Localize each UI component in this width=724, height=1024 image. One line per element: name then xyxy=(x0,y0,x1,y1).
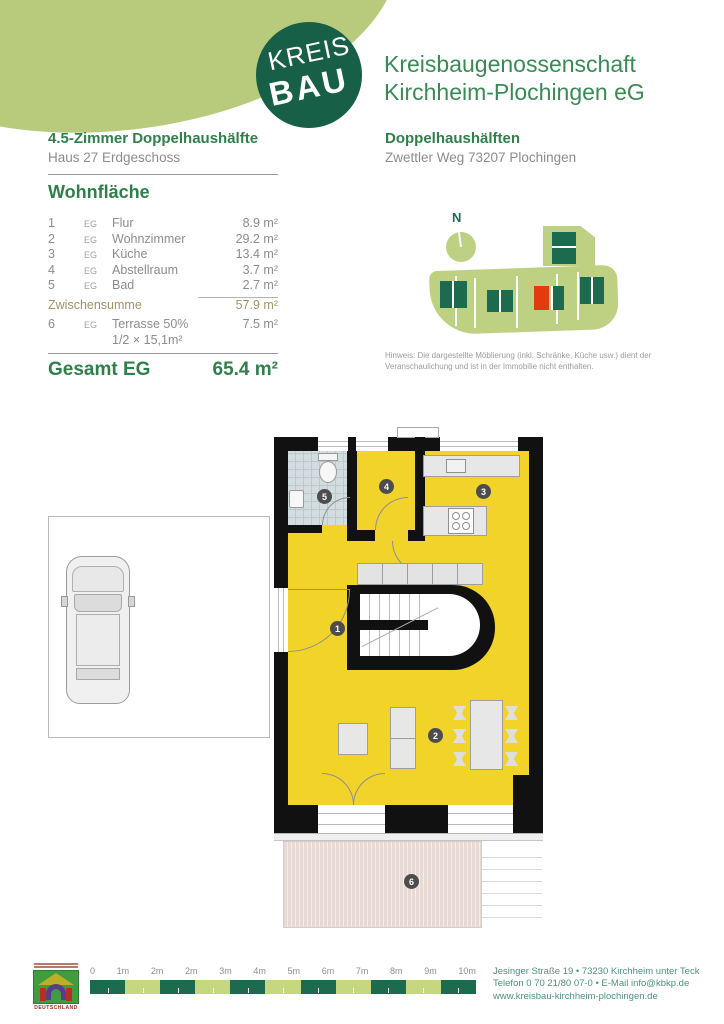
scale-tick xyxy=(143,988,144,993)
scale-tick xyxy=(248,988,249,993)
scale-tick xyxy=(458,988,459,993)
scale-segment xyxy=(230,980,265,994)
scale-labels: 0 1m 2m 2m 3m 4m 5m 6m 7m 8m 9m 10m xyxy=(90,966,476,976)
scale-tick xyxy=(213,988,214,993)
footer: DEUTSCHLAND 0 1m 2m 2m 3m 4m 5m 6m 7m 8m… xyxy=(0,0,724,1024)
scale-bar: 0 1m 2m 2m 3m 4m 5m 6m 7m 8m 9m 10m xyxy=(90,966,476,994)
room-badge-1: 1 xyxy=(330,621,345,636)
scale-tick xyxy=(108,988,109,993)
logo-small-text xyxy=(34,963,78,965)
scale-segment xyxy=(265,980,300,994)
scale-label: 2m xyxy=(185,966,198,976)
arch-shape xyxy=(46,984,66,1000)
scale-segment xyxy=(301,980,336,994)
scale-label: 9m xyxy=(424,966,437,976)
scale-segment xyxy=(371,980,406,994)
deutschland-label: DEUTSCHLAND xyxy=(31,1005,81,1011)
address-line3: www.kreisbau-kirchheim-plochingen.de xyxy=(493,991,713,1003)
address-line2: Telefon 0 70 21/80 07-0 • E-Mail info@kb… xyxy=(493,978,713,990)
scale-segment xyxy=(441,980,476,994)
scale-tick xyxy=(423,988,424,993)
scale-label: 10m xyxy=(458,966,476,976)
scale-segment xyxy=(125,980,160,994)
scale-label: 1m xyxy=(117,966,130,976)
scale-label: 5m xyxy=(288,966,301,976)
scale-segment xyxy=(406,980,441,994)
room-badge-3: 3 xyxy=(476,484,491,499)
scale-label: 7m xyxy=(356,966,369,976)
scale-tick xyxy=(283,988,284,993)
scale-label: 8m xyxy=(390,966,403,976)
scale-label: 6m xyxy=(322,966,335,976)
arch-opening xyxy=(51,989,61,1000)
scale-label: 3m xyxy=(219,966,232,976)
room-badge-5: 5 xyxy=(317,489,332,504)
room-badge-4: 4 xyxy=(379,479,394,494)
logo-small-text xyxy=(34,966,78,968)
certification-logo: DEUTSCHLAND xyxy=(31,962,81,1011)
room-badge-6: 6 xyxy=(404,874,419,889)
house-arch-icon xyxy=(33,970,79,1004)
scale-tick xyxy=(353,988,354,993)
scale-segments xyxy=(90,980,476,994)
scale-label: 4m xyxy=(253,966,266,976)
scale-label: 2m xyxy=(151,966,164,976)
scale-tick xyxy=(178,988,179,993)
pillar-shape xyxy=(66,988,72,1001)
contact-address: Jesinger Straße 19 • 73230 Kirchheim unt… xyxy=(493,966,713,1003)
page: KREIS BAU Kreisbaugenossenschaft Kirchhe… xyxy=(0,0,724,1024)
scale-segment xyxy=(90,980,125,994)
room-badge-2: 2 xyxy=(428,728,443,743)
pillar-shape xyxy=(40,988,46,1001)
scale-segment xyxy=(336,980,371,994)
address-line1: Jesinger Straße 19 • 73230 Kirchheim unt… xyxy=(493,966,713,978)
scale-segment xyxy=(195,980,230,994)
scale-label: 0 xyxy=(90,966,95,976)
scale-tick xyxy=(388,988,389,993)
scale-tick xyxy=(318,988,319,993)
scale-segment xyxy=(160,980,195,994)
